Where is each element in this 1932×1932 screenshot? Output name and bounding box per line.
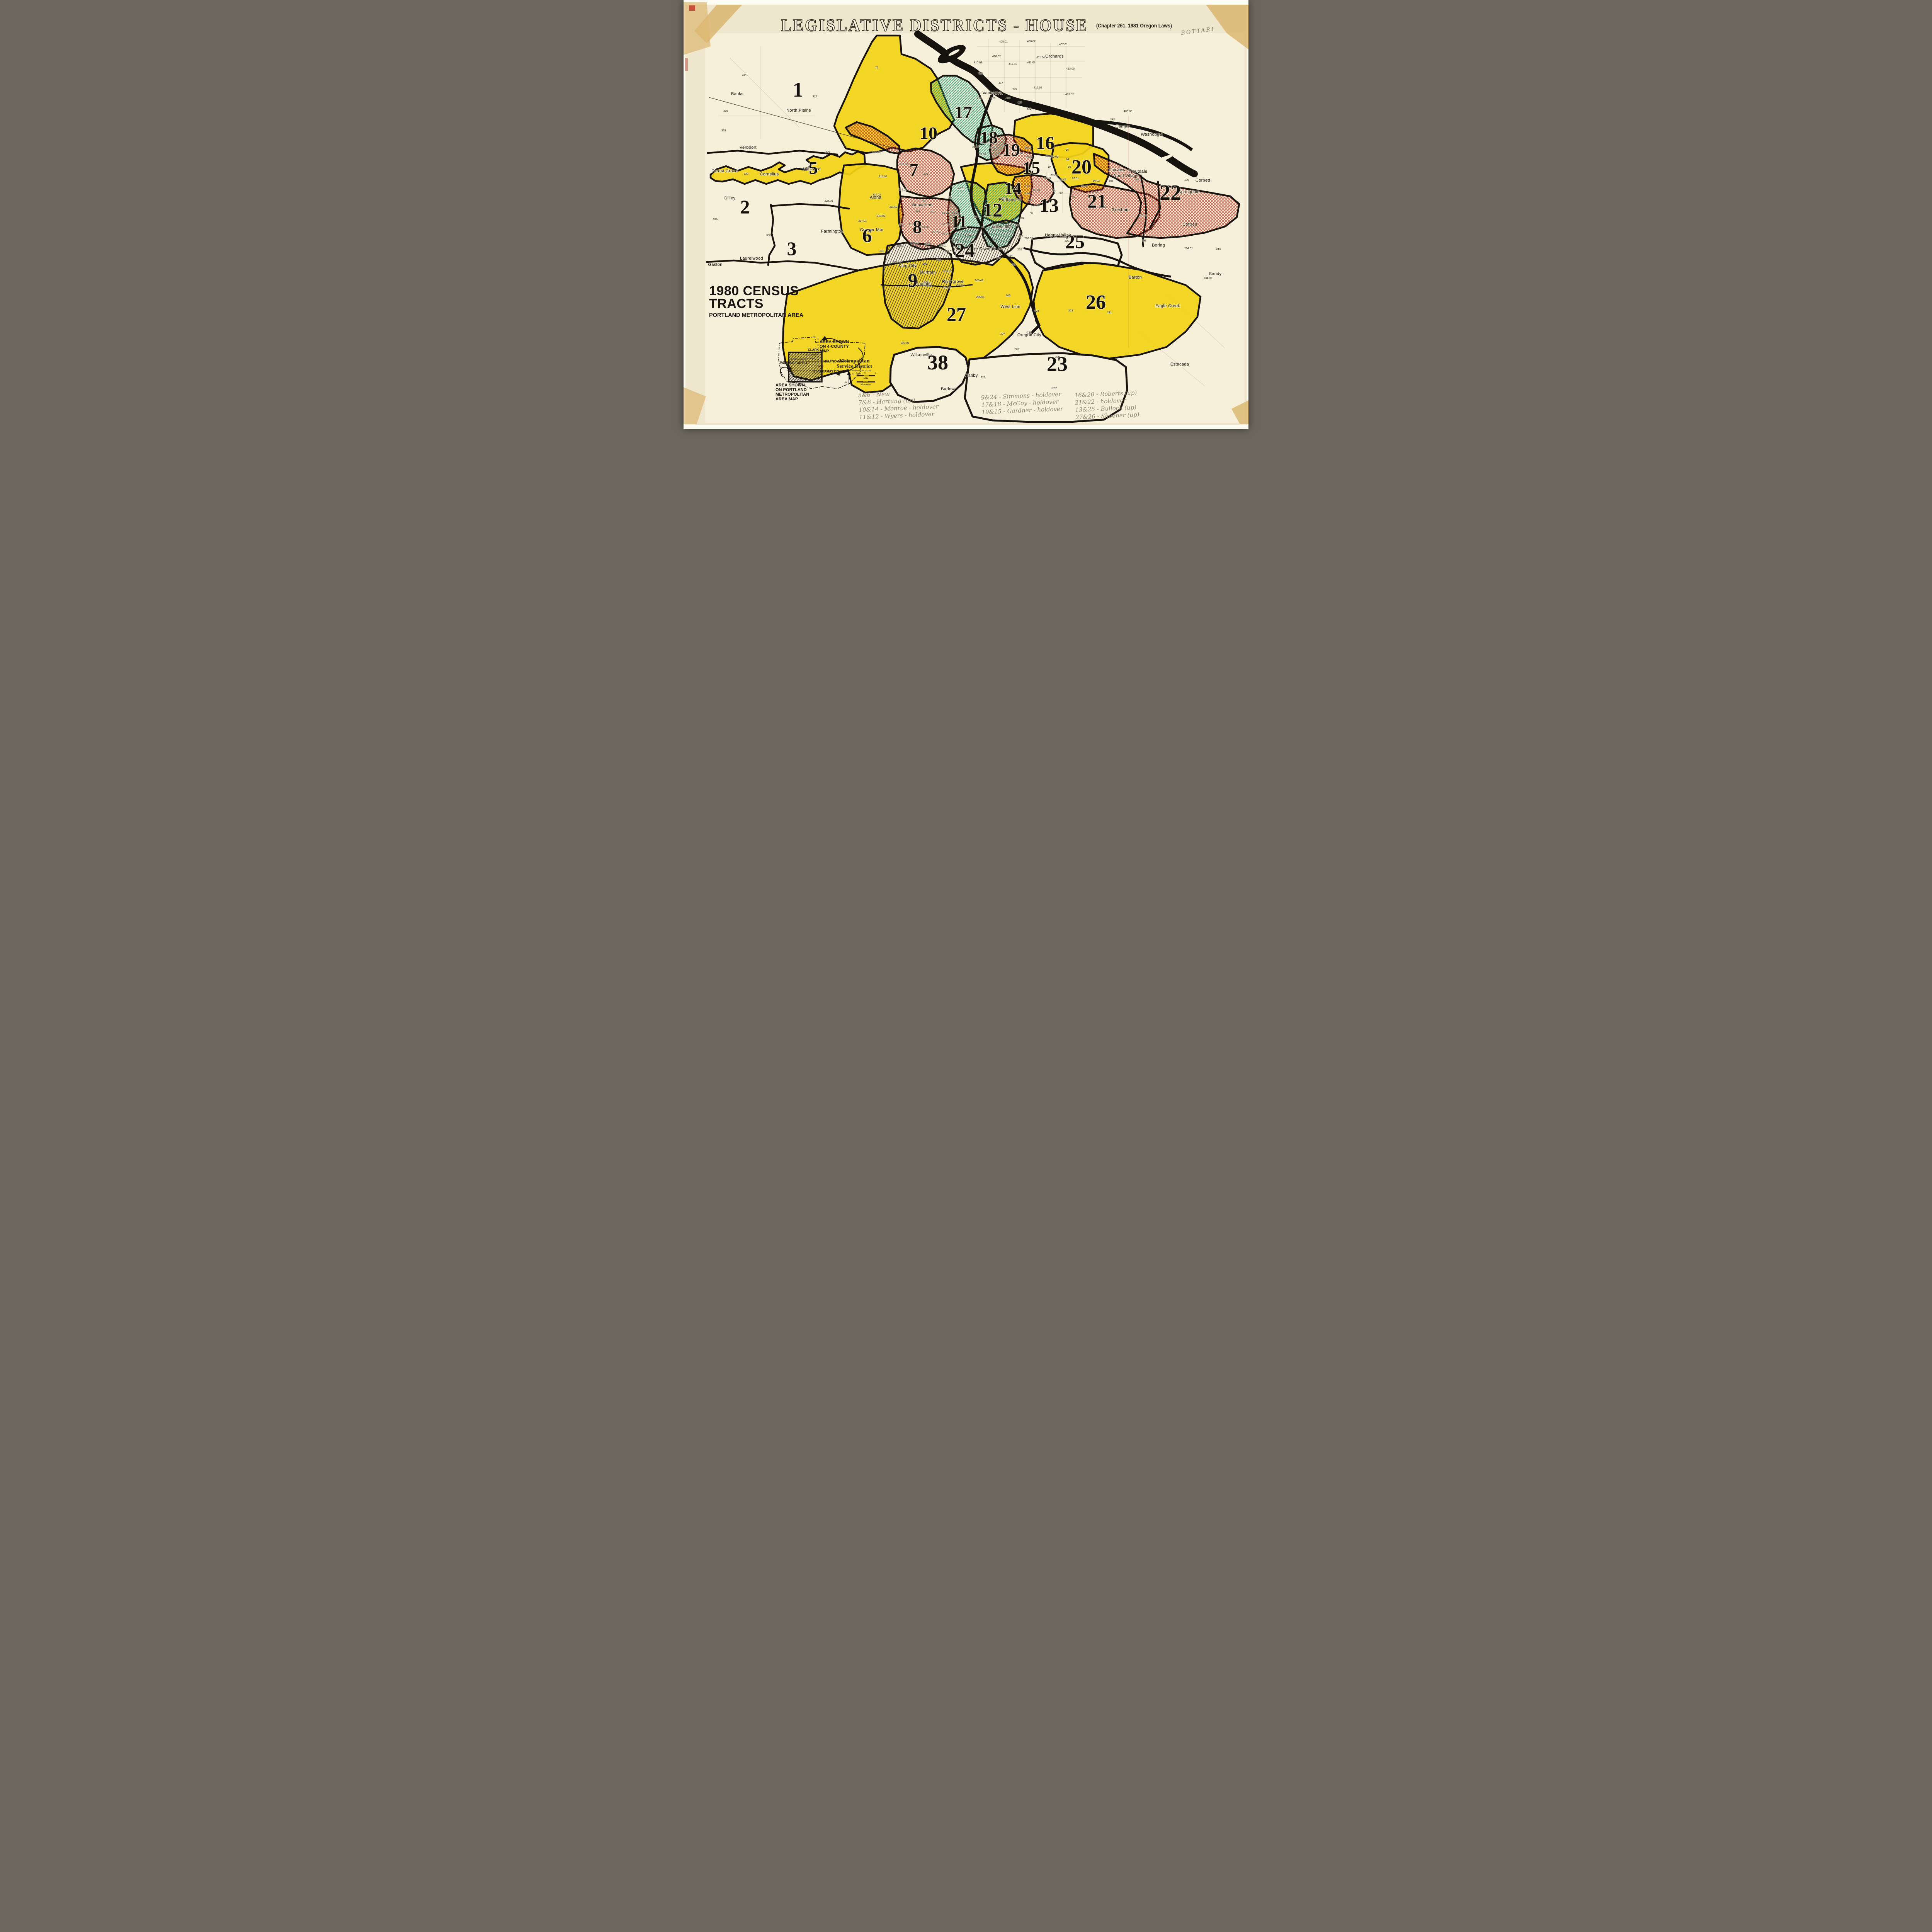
- inset-county-clark: CLARK CO.: [808, 348, 825, 352]
- tract-label-203.02: 203.02: [943, 269, 952, 273]
- tract-label-7.02: 7.02: [1025, 192, 1030, 195]
- city-label-barton: Barton: [1129, 275, 1142, 280]
- city-label-estacada: Estacada: [1170, 362, 1189, 367]
- tract-label-6.02: 6.02: [1034, 204, 1039, 207]
- tract-label-327: 327: [813, 95, 817, 98]
- tract-label-216.02: 216.02: [1024, 236, 1033, 240]
- tract-label-317.02: 317.02: [877, 214, 885, 218]
- tract-label-229: 229: [981, 376, 985, 379]
- inset-county-clackamas: CLACKAMAS CO.: [813, 370, 840, 373]
- city-label-aloha: Aloha: [870, 195, 881, 200]
- tract-label-63: 63: [981, 225, 985, 229]
- city-label-fairview: Fairview: [1109, 168, 1125, 172]
- tract-label-81: 81: [1048, 165, 1051, 169]
- tract-label-411.03: 411.03: [1027, 61, 1035, 64]
- tract-label-336: 336: [713, 218, 718, 221]
- city-label-barlow: Barlow: [941, 387, 954, 391]
- tract-label-211: 211: [1019, 235, 1023, 238]
- district-38-label: 38: [927, 351, 948, 374]
- tract-label-314.01: 314.01: [898, 188, 907, 191]
- tract-label-105: 105: [1184, 178, 1189, 182]
- city-label-banks: Banks: [731, 92, 743, 96]
- tract-label-218: 218: [1011, 263, 1016, 266]
- publisher-address: 527 SW Hall Portland OR 97201: [838, 369, 871, 372]
- tract-label-304.01: 304.01: [921, 225, 929, 229]
- tract-label-94: 94: [1066, 158, 1069, 161]
- city-label-springdale: Springdale: [1178, 190, 1200, 194]
- scan-margin-bottom: [684, 425, 1248, 429]
- tract-label-210: 210: [1015, 223, 1020, 227]
- district-19-label: 19: [1002, 140, 1020, 160]
- scanned-map-page: 334335333327326332336324.01330316.01316.…: [684, 0, 1248, 429]
- note-line-col1-1: 5&6 - New: [858, 390, 890, 399]
- city-label-sandy: Sandy: [1209, 272, 1222, 276]
- tract-label-207: 207: [1000, 332, 1005, 335]
- tract-label-317.01: 317.01: [858, 219, 867, 223]
- city-label-milwaukie: Milwaukie: [992, 225, 1012, 230]
- tract-label-233: 233: [1142, 239, 1146, 242]
- tract-label-35.02: 35.02: [972, 145, 979, 148]
- tract-label-227.01: 227.01: [901, 341, 909, 345]
- tract-label-318: 318: [879, 249, 884, 253]
- tract-label-86: 86: [1030, 211, 1033, 215]
- inset-metro-line3: METROPOLITAN: [776, 392, 809, 397]
- mile-tick-half: ½: [864, 372, 866, 375]
- district-27-label: 27: [947, 303, 966, 325]
- tract-label-29.01: 29.01: [1025, 146, 1032, 150]
- tract-label-204.01: 204.01: [943, 286, 952, 289]
- district-9-label: 9: [908, 269, 918, 291]
- tract-label-5.02: 5.02: [1027, 198, 1033, 202]
- tract-label-234.01: 234.01: [1184, 247, 1193, 250]
- tract-label-88: 88: [1021, 216, 1024, 219]
- tract-label-429: 429: [1017, 100, 1022, 104]
- tract-label-332: 332: [744, 172, 748, 175]
- district-17-label: 17: [954, 102, 972, 122]
- tract-label-103: 103: [1135, 178, 1139, 181]
- tract-label-420: 420: [978, 71, 983, 75]
- tract-label-66.01: 66.01: [942, 232, 949, 235]
- tract-label-428: 428: [1006, 96, 1010, 100]
- tract-label-319.01: 319.01: [892, 260, 901, 264]
- publisher-name1: Metropolitan: [839, 358, 869, 364]
- inset-city-portland: Portland: [806, 357, 815, 360]
- district-26-label: 26: [1086, 291, 1106, 313]
- tract-label-101: 101: [1109, 179, 1113, 183]
- city-label-canby: Canby: [965, 373, 978, 378]
- tract-label-411.01: 411.01: [1009, 62, 1017, 66]
- tract-label-206: 206: [1006, 294, 1010, 297]
- city-label-beaverton: Beaverton: [912, 203, 933, 207]
- inset-city-sandy: Sandy: [816, 365, 824, 368]
- district-10-label: 10: [920, 123, 937, 143]
- city-label-troutdale: Troutdale: [1129, 169, 1148, 174]
- red-corner-mark: [689, 5, 695, 11]
- inset-city-vancouver: Vancouver: [806, 354, 818, 356]
- tract-label-91: 91: [1072, 195, 1075, 199]
- tract-label-411.04: 411.04: [1036, 56, 1044, 59]
- tract-label-410.02: 410.02: [992, 54, 1001, 58]
- tract-label-333: 333: [721, 129, 726, 132]
- district-23-label: 23: [1047, 352, 1068, 376]
- tract-label-408.02: 408.02: [1027, 39, 1036, 43]
- tract-label-416: 416: [1012, 87, 1017, 90]
- tract-label-315.03: 315.03: [900, 162, 908, 166]
- tract-label-319.02: 319.02: [910, 241, 919, 245]
- tract-label-312: 312: [899, 223, 904, 226]
- city-label-gresham: Gresham: [1111, 207, 1129, 212]
- inset-county-washington: WASHINGTON CO.: [780, 361, 808, 365]
- inset-city-forestgrove: Forest Grove: [791, 358, 806, 361]
- tract-label-313: 313: [915, 209, 920, 213]
- city-label-eagle-creek: Eagle Creek: [1155, 304, 1180, 308]
- tract-label-213: 213: [996, 256, 1001, 260]
- tract-label-71: 71: [875, 66, 878, 69]
- publisher-name2: Service District: [837, 364, 872, 369]
- tract-label-330: 330: [766, 233, 771, 237]
- tract-label-212: 212: [998, 247, 1002, 250]
- city-label-washougal: Washougal: [1141, 132, 1163, 137]
- caption-line2: TRACTS: [709, 296, 764, 311]
- tract-label-95: 95: [1066, 148, 1069, 151]
- city-label-verboort: Verboort: [740, 145, 757, 150]
- tract-label-314.02: 314.02: [889, 205, 898, 209]
- city-label-vancouver: Vancouver: [983, 91, 1004, 95]
- city-label-corbett: Corbett: [1196, 178, 1210, 183]
- city-label-laurelwood: Laurelwood: [740, 256, 763, 261]
- district-24-label: 24: [955, 240, 975, 262]
- tract-label-310.01: 310.01: [896, 244, 905, 248]
- city-label-king-city: King City: [899, 264, 917, 268]
- tract-label-22.01: 22.01: [979, 153, 986, 156]
- district-21-label: 21: [1087, 190, 1107, 212]
- city-label-gaston: Gaston: [708, 262, 722, 267]
- city-label-north-plains: North Plains: [786, 108, 811, 113]
- city-label-oregon-city: Oregon City: [1017, 333, 1041, 337]
- tract-label-65.01: 65.01: [940, 244, 947, 247]
- tract-label-311: 311: [908, 223, 913, 226]
- district-6-label: 6: [862, 224, 872, 246]
- tract-label-83.01: 83.01: [1033, 188, 1040, 192]
- red-edge-streak: [685, 58, 688, 71]
- district-15-label: 15: [1022, 158, 1040, 178]
- inset-metro-line2: ON PORTLAND: [776, 388, 807, 392]
- tract-label-413.03: 413.03: [1066, 67, 1075, 70]
- district-18-label: 18: [980, 128, 998, 147]
- tract-label-417: 417: [998, 81, 1003, 85]
- tract-label-243: 243: [1216, 247, 1221, 251]
- tract-label-223: 223: [1068, 309, 1073, 312]
- tract-label-84: 84: [1053, 189, 1056, 192]
- tract-label-224: 224: [1034, 309, 1039, 313]
- tract-label-82.02: 82.02: [1051, 173, 1058, 177]
- map-title: LEGISLATIVE DISTRICTS - HOUSE: [781, 16, 1088, 35]
- tract-label-407.01: 407.01: [1059, 43, 1068, 46]
- district-14-label: 14: [1004, 179, 1021, 198]
- tract-label-82.01: 82.01: [1044, 176, 1051, 180]
- tract-label-104.03: 104.03: [1139, 214, 1148, 217]
- tract-label-90: 90: [1060, 191, 1063, 194]
- tract-label-98.02: 98.02: [1081, 184, 1088, 188]
- tract-label-315.02: 315.02: [872, 150, 881, 154]
- tract-label-335: 335: [723, 109, 728, 112]
- scan-margin-right: [1247, 0, 1248, 429]
- district-13-label: 13: [1039, 194, 1059, 216]
- tract-label-414: 414: [1110, 117, 1115, 121]
- tract-label-4.02: 4.02: [1016, 198, 1022, 201]
- tract-label-316.01: 316.01: [879, 175, 887, 178]
- tract-label-46.01: 46.01: [958, 187, 965, 190]
- district-7-label: 7: [910, 160, 918, 180]
- tract-label-234.02: 234.02: [1204, 276, 1212, 280]
- mile-label: Mile: [864, 377, 868, 380]
- tract-label-226: 226: [1014, 347, 1019, 351]
- tract-label-62: 62: [974, 215, 977, 219]
- city-label-forest-grove: Forest Grove: [711, 169, 738, 173]
- tract-label-302: 302: [922, 199, 926, 203]
- city-label-cornelius: Cornelius: [760, 172, 779, 177]
- tract-label-408.01: 408.01: [999, 40, 1008, 43]
- city-label-dilley: Dilley: [724, 196, 736, 201]
- tract-label-413.02: 413.02: [1065, 92, 1074, 96]
- caption-line3: PORTLAND METROPOLITAN AREA: [709, 312, 804, 318]
- mile-tick-0: 0: [856, 372, 857, 375]
- tract-label-301: 301: [923, 172, 928, 175]
- district-1-label: 1: [793, 78, 803, 101]
- city-label-west-linn: West Linn: [1000, 304, 1020, 309]
- tract-label-334: 334: [742, 73, 747, 77]
- tract-label-93: 93: [1068, 165, 1071, 168]
- district-3-label: 3: [787, 238, 797, 259]
- inset-metro-line4: AREA MAP: [776, 397, 798, 401]
- mile-tick-1: 1: [874, 372, 876, 375]
- inset-4county-line1: AREA SHOWN: [820, 340, 849, 344]
- tract-label-412.02: 412.02: [1034, 86, 1042, 89]
- tract-label-309: 309: [923, 262, 927, 265]
- kilometer-label: Kilometer: [861, 383, 871, 386]
- inset-metro-line1: AREA SHOWN: [776, 383, 805, 388]
- tract-label-203.01: 203.01: [944, 250, 953, 253]
- city-label-durham: Durham: [920, 270, 936, 275]
- tract-label-205.01: 205.01: [976, 295, 985, 299]
- tract-label-205.02: 205.02: [975, 279, 983, 282]
- district-5-label: 5: [809, 158, 818, 178]
- tract-label-68.01: 68.01: [942, 211, 949, 214]
- tract-label-64.02: 64.02: [965, 233, 972, 236]
- district-22-label: 22: [1160, 181, 1181, 205]
- district-8-label: 8: [913, 217, 922, 237]
- city-label-farmington: Farmington: [821, 229, 844, 234]
- tract-label-303: 303: [930, 210, 935, 213]
- tract-label-431: 431: [1027, 107, 1031, 111]
- city-label-camas: Camas: [1116, 124, 1130, 129]
- legislative-districts-map: 334335333327326332336324.01330316.01316.…: [684, 0, 1248, 429]
- scan-margin-top: [684, 0, 1248, 5]
- tract-label-92.01: 92.01: [1060, 178, 1066, 181]
- tract-label-237: 237: [1052, 386, 1057, 390]
- tract-label-69: 69: [949, 196, 952, 199]
- tract-label-67.01: 67.01: [942, 223, 949, 226]
- tract-label-96.02: 96.02: [1093, 179, 1100, 182]
- district-16-label: 16: [1036, 133, 1054, 153]
- tract-label-305: 305: [926, 241, 931, 245]
- city-label-tualatin: Tualatin: [916, 282, 932, 286]
- tract-label-410.03: 410.03: [974, 61, 982, 64]
- district-2-label: 2: [740, 196, 750, 218]
- district-20-label: 20: [1071, 156, 1092, 178]
- tract-label-324.01: 324.01: [825, 199, 833, 202]
- tract-label-215: 215: [1017, 248, 1022, 251]
- tract-label-304.02: 304.02: [932, 230, 940, 233]
- tract-label-80.02: 80.02: [1051, 155, 1058, 158]
- district-11-label: 11: [951, 212, 967, 231]
- city-label-rivergrove: Rivergrove: [942, 279, 964, 284]
- district-12-label: 12: [983, 199, 1002, 221]
- north-label: N: [845, 381, 847, 384]
- city-label-orchards: Orchards: [1045, 54, 1064, 59]
- tract-label-326: 326: [825, 150, 830, 153]
- city-label-wood-village: Wood Village: [1112, 173, 1139, 178]
- tract-label-405.03: 405.03: [1124, 109, 1132, 113]
- city-label-cottrell: Cottrell: [1182, 222, 1197, 227]
- tract-label-231: 231: [1107, 311, 1112, 314]
- tract-label-214: 214: [1008, 254, 1013, 257]
- district-25-label: 25: [1065, 231, 1085, 252]
- tract-label-7.01: 7.01: [1025, 184, 1030, 188]
- city-label-boring: Boring: [1152, 243, 1165, 248]
- tract-label-424: 424: [977, 97, 981, 100]
- tract-label-426: 426: [991, 97, 995, 100]
- tract-label-306: 306: [936, 258, 941, 262]
- map-subtitle: (Chapter 261, 1981 Oregon Laws): [1096, 22, 1172, 29]
